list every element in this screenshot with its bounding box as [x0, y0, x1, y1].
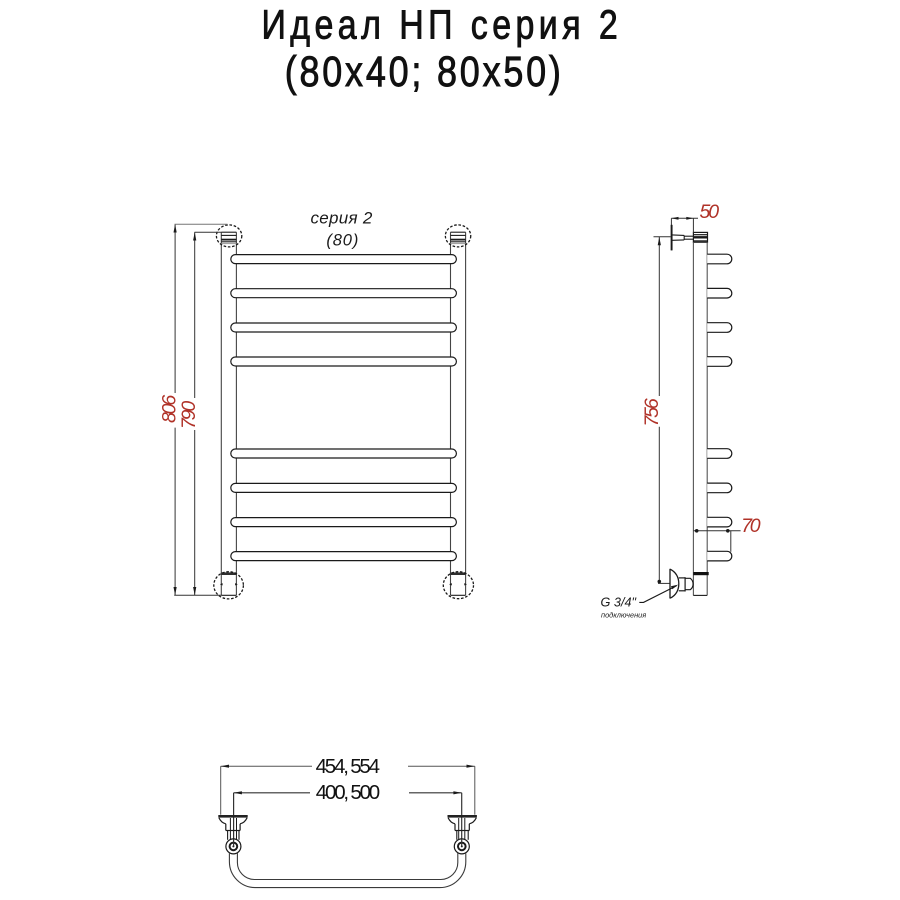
svg-text:454, 554: 454, 554 — [316, 755, 380, 778]
svg-text:подключения: подключения — [601, 610, 646, 619]
svg-text:(80): (80) — [326, 232, 359, 250]
svg-text:(80x40; 80x50): (80x40; 80x50) — [285, 48, 564, 96]
svg-text:50: 50 — [700, 201, 720, 223]
svg-text:Идеал НП серия 2: Идеал НП серия 2 — [261, 1, 622, 47]
svg-text:790: 790 — [178, 401, 200, 429]
svg-text:G 3/4": G 3/4" — [601, 595, 637, 609]
svg-text:400, 500: 400, 500 — [316, 781, 380, 804]
svg-text:серия 2: серия 2 — [310, 209, 372, 228]
svg-text:70: 70 — [741, 515, 761, 537]
svg-text:756: 756 — [641, 398, 663, 426]
